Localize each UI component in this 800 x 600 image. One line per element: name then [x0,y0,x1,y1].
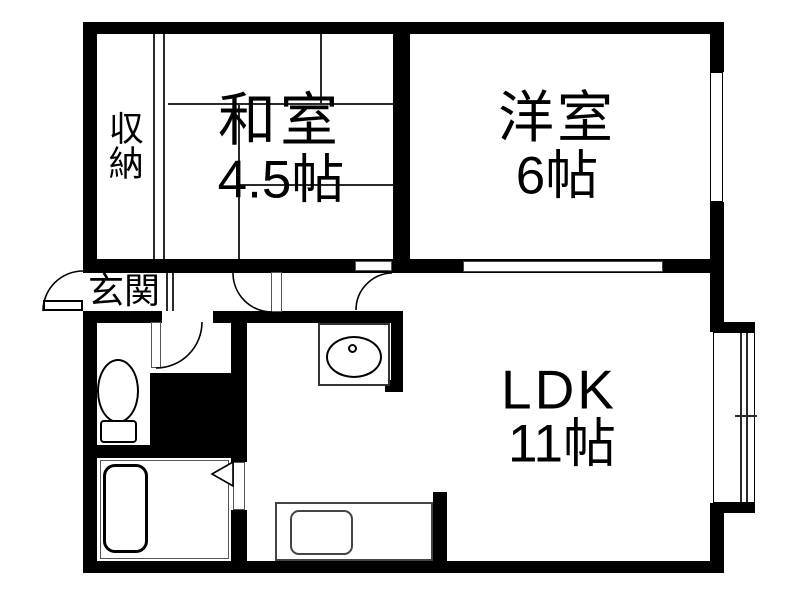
wall-exterior-left-lower [83,311,97,573]
floor-plan: 収納 和室 4.5帖 洋室 6帖 玄関 LDK 11帖 [0,0,800,600]
ldk-label: LDK [501,363,617,418]
kitchen-sink [290,510,353,555]
wall-washroom-left-upper [231,311,247,462]
yoshitsu-ldk-sliding-opening [463,261,663,272]
wall-exterior-top [83,22,724,34]
genkan-step-line-left [166,273,168,311]
washitsu-door-swing [356,273,392,310]
closet-label: 収納 [104,110,141,180]
genkan-label: 玄関 [88,273,160,309]
yoshitsu-side-window [710,72,723,202]
genkan-step-line-right [172,273,174,311]
toilet-bowl [97,359,139,423]
closet-partition-line-left [153,34,155,259]
toilet-doorway-gap [162,311,213,323]
bathroom-door-leaf [233,462,245,510]
washbasin [326,336,382,378]
toilet-tank [100,420,137,443]
toilet-door-leaf [151,322,161,368]
balcony-window-pane-line-2 [746,333,748,502]
toilet-door-swing [156,322,202,368]
wall-exterior-right-1 [710,22,724,72]
wall-bay-stub-bottom [710,503,755,513]
wall-washroom-left-lower [231,510,247,562]
wall-exterior-right-3 [710,513,724,573]
washbasin-faucet [348,344,357,353]
wall-exterior-left-upper [83,22,97,273]
washitsu-size-label: 4.5帖 [218,154,345,207]
wall-washitsu-yoshitsu-divider [393,34,410,262]
yoshitsu-label: 洋室 [498,90,616,146]
bathtub [103,464,148,553]
hall-door-swing [233,273,272,312]
yoshitsu-size-label: 6帖 [516,150,598,203]
washitsu-label: 和室 [218,92,342,150]
entrance-door-leaf [43,300,83,311]
balcony-window-pane-line-1 [740,333,742,502]
wall-bay-stub-top [710,322,755,332]
ldk-size-label: 11帖 [508,418,616,471]
balcony-window-crossbar [735,415,757,417]
wall-exterior-bottom [83,561,724,573]
pipe-space-block [150,373,233,445]
closet-partition-line-right [163,34,165,259]
ldk-balcony-window [713,332,755,503]
hall-door-leaf [271,272,282,312]
wall-kitchen-stub [433,492,447,562]
washitsu-door-leaf [355,261,392,271]
wall-bathroom-top [97,445,231,458]
